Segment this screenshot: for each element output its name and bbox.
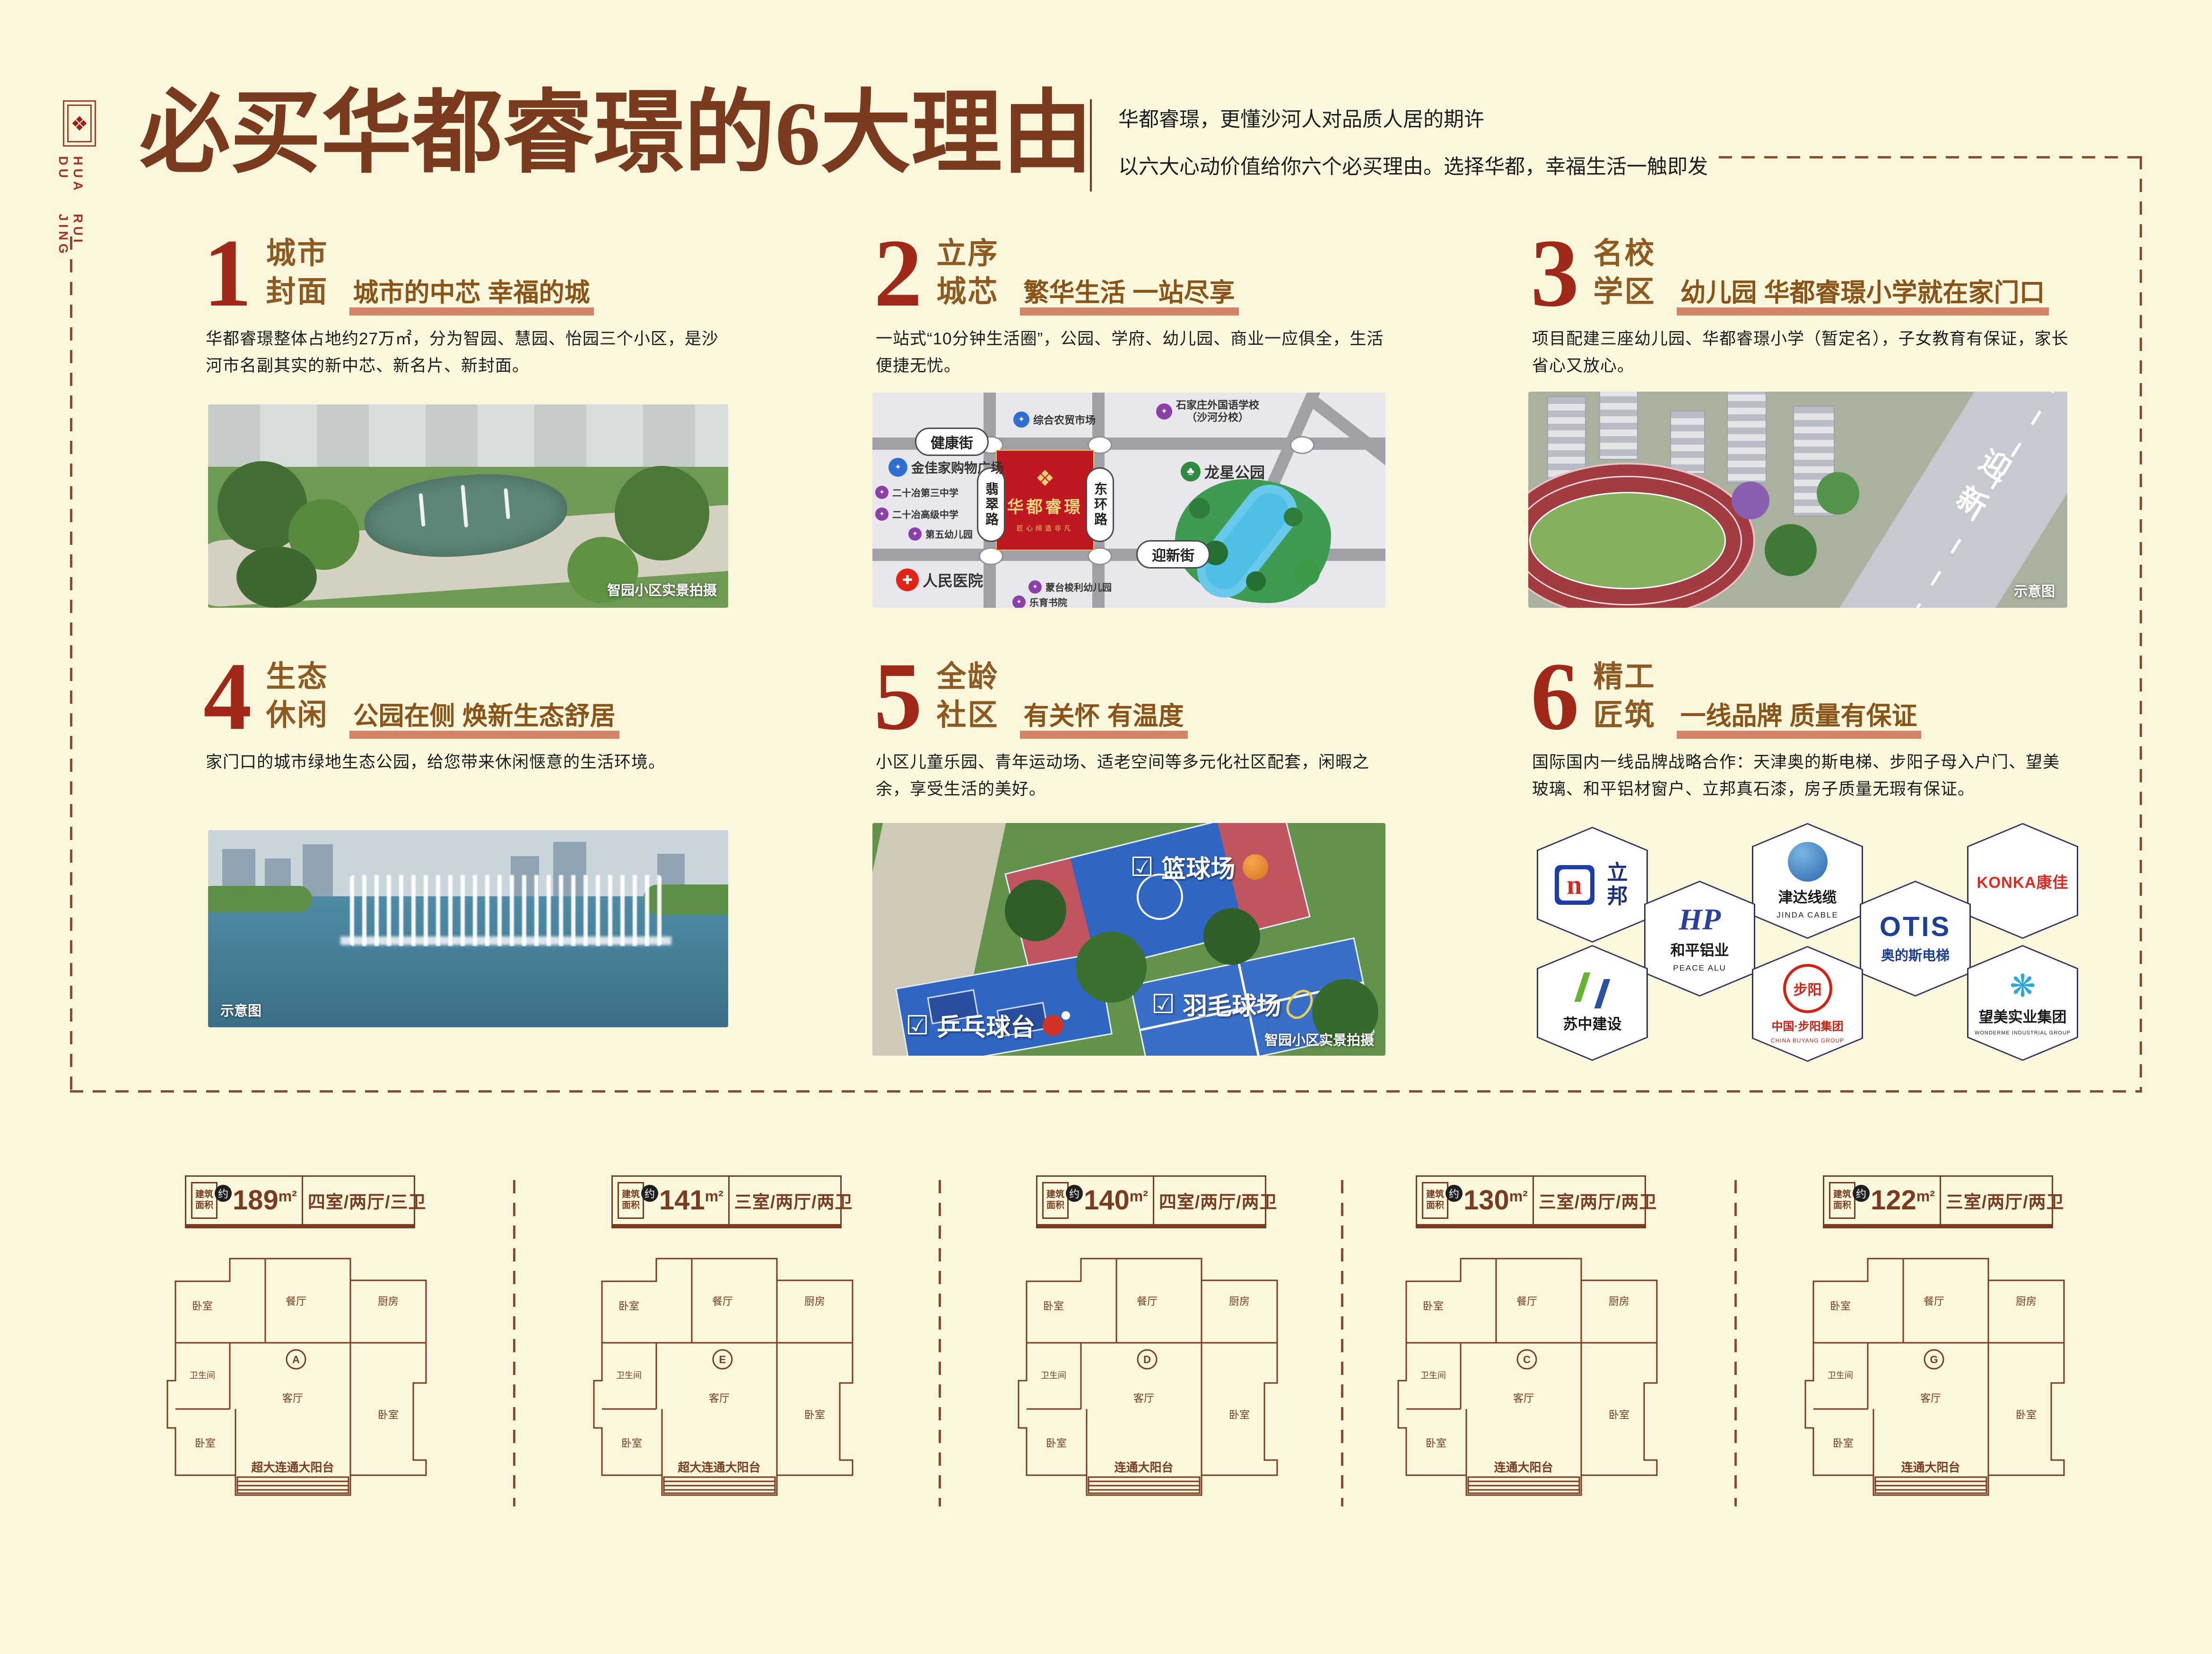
- market-icon: ✦: [1013, 411, 1029, 428]
- section-1-number: 1: [203, 236, 252, 310]
- floorplan-card-189: 建筑面积 约 189m² 四室/两厅/三卫 卧室 餐厅 厨房 卫生间 客厅 卧室…: [185, 1175, 488, 1534]
- svg-text:卧室: 卧室: [1609, 1409, 1629, 1421]
- floorplan-label: 建筑面积 约 140m² 四室/两厅/两卫: [1036, 1175, 1266, 1228]
- plan-unit: m²: [1916, 1188, 1935, 1205]
- photo-caption: 示意图: [2014, 580, 2055, 600]
- running-track: [1528, 463, 1755, 608]
- fountain-icon: [350, 875, 662, 946]
- svg-text:卧室: 卧室: [1426, 1437, 1446, 1449]
- plan-separator: [1341, 1180, 1343, 1506]
- floorplan-drawing: 卧室 餐厅 厨房 卫生间 客厅 卧室 卧室 D 连通大阳台: [1010, 1239, 1294, 1532]
- tagline-line1: 华都睿璟，更懂沙河人对品质人居的期许: [1118, 96, 1708, 143]
- poi-mall: ✦ 金佳家购物广场: [888, 458, 1004, 477]
- plan-separator: [513, 1180, 515, 1506]
- floorplan-drawing: 卧室 餐厅 厨房 卫生间 客厅 卧室 卧室 E 超大连通大阳台: [585, 1239, 869, 1532]
- section-1-heading: 1 城市 封面 城市的中芯 幸福的城: [203, 236, 594, 310]
- section-4-number: 4: [203, 660, 252, 734]
- brand-subname: JINDA CABLE: [1777, 910, 1838, 920]
- brand-subname: CHINA BUYANG GROUP: [1771, 1037, 1844, 1044]
- plan-config: 三室/两厅/两卫: [730, 1177, 858, 1224]
- svg-text:卧室: 卧室: [2016, 1409, 2037, 1421]
- svg-text:卧室: 卧室: [1830, 1300, 1851, 1312]
- poi-kindergarten5-label: 第五幼儿园: [925, 527, 973, 541]
- area-label-box: 建筑面积: [191, 1182, 218, 1219]
- svg-text:餐厅: 餐厅: [286, 1295, 306, 1307]
- svg-text:卧室: 卧室: [618, 1300, 639, 1312]
- section-4-title2: 休闲: [266, 698, 329, 733]
- frame-top-dash: [1719, 156, 2141, 158]
- section-1-subtitle: 城市的中芯 幸福的城: [349, 271, 594, 310]
- frame-left-dash: [70, 236, 72, 1093]
- label-badminton-text: 羽毛球场: [1183, 986, 1281, 1022]
- section-3-heading: 3 名校 学区 幼儿园 华都睿璟小学就在家门口: [1531, 236, 2049, 310]
- brand-grid: n 立邦 津达线缆 JINDA CABLE KONKA康佳 HP 和平铝业 PE…: [1530, 823, 2076, 1062]
- plan-config: 三室/两厅/两卫: [1534, 1177, 1662, 1224]
- pingpong-paddle-icon: [1043, 1015, 1063, 1036]
- section-2-title2: 城芯: [937, 275, 999, 310]
- sports-photo: ☑ 篮球场 ☑ 羽毛球场 ☑ 乒乓球台 智园小区实景拍摄: [872, 823, 1385, 1056]
- photo-caption: 智园小区实景拍摄: [607, 579, 717, 599]
- school-icon: ✦: [875, 508, 888, 521]
- basketball-icon: [1243, 854, 1268, 880]
- checkbox-icon: ☑: [1130, 851, 1154, 883]
- section-2-number: 2: [874, 236, 923, 310]
- section-1-title1: 城市: [266, 236, 594, 271]
- brand-jinda: 津达线缆 JINDA CABLE: [1752, 823, 1863, 939]
- brand-name: 和平铝业: [1671, 938, 1729, 960]
- svg-text:客厅: 客厅: [709, 1392, 730, 1404]
- section-2-heading: 2 立序 城芯 繁华生活 一站尽享: [874, 236, 1239, 310]
- label-basketball-text: 篮球场: [1161, 849, 1235, 884]
- school-icon: ✦: [1012, 595, 1026, 608]
- checkbox-icon: ☑: [906, 1010, 929, 1041]
- section-5-subtitle: 有关怀 有温度: [1020, 695, 1188, 733]
- section-3-number: 3: [1531, 236, 1579, 310]
- tree-icon: [1189, 498, 1210, 519]
- svg-text:餐厅: 餐厅: [712, 1295, 733, 1307]
- section-6-title2: 匠筑: [1594, 698, 1656, 733]
- svg-text:卫生间: 卫生间: [1828, 1371, 1853, 1380]
- svg-text:超大连通大阳台: 超大连通大阳台: [251, 1461, 334, 1474]
- lake-shape: [1186, 473, 1308, 608]
- poi-foreign-school: ✦ 石家庄外国语学校 （沙河分校）: [1156, 399, 1259, 424]
- floorplan-card-122: 建筑面积 约 122m² 三室/两厅/两卫 卧室 餐厅 厨房 卫生间 客厅 卧室…: [1823, 1175, 2125, 1534]
- poi-hospital: ✚ 人民医院: [896, 569, 983, 591]
- floorplan-drawing: 卧室 餐厅 厨房 卫生间 客厅 卧室 卧室 A 超大连通大阳台: [159, 1239, 443, 1532]
- page-title: 必买华都睿璟的6大理由: [139, 86, 1093, 182]
- tagline-line2: 以六大心动价值给你六个必买理由。选择华都，幸福生活一触即发: [1118, 143, 1708, 191]
- svg-text:卫生间: 卫生间: [190, 1371, 215, 1380]
- road-diagonal: [1311, 397, 1385, 468]
- section-3-title2: 学区: [1594, 275, 1656, 310]
- plan-unit: m²: [279, 1188, 297, 1205]
- svg-text:客厅: 客厅: [1920, 1392, 1941, 1404]
- poi-school-senior: ✦ 二十冶高级中学: [875, 507, 958, 521]
- brand-otis: OTIS 奥的斯电梯: [1860, 881, 1971, 997]
- label-pingpong-text: 乒乓球台: [937, 1007, 1035, 1043]
- poi-market-label: 综合农贸市场: [1033, 412, 1096, 427]
- floorplan-label: 建筑面积 约 189m² 四室/两厅/三卫: [185, 1175, 415, 1228]
- brand-subname: PEACE ALU: [1673, 963, 1726, 973]
- svg-text:卫生间: 卫生间: [1420, 1371, 1446, 1380]
- road-label-feicui: 翡翠路: [977, 467, 1005, 542]
- mall-icon: ✦: [888, 458, 907, 477]
- lake-park-photo: 示意图: [208, 830, 728, 1027]
- road-label-jiankang: 健康街: [915, 428, 989, 456]
- svg-text:客厅: 客厅: [1513, 1392, 1534, 1404]
- project-block: ❖ 华都睿璟 匠心缔造非凡: [996, 450, 1094, 551]
- section-3-subtitle: 幼儿园 华都睿璟小学就在家门口: [1677, 271, 2049, 310]
- svg-text:厨房: 厨房: [378, 1295, 399, 1307]
- brand-seal-icon: ❖: [63, 100, 96, 147]
- poi-park-label: 龙星公园: [1204, 461, 1265, 482]
- brand-name: 望美实业集团: [1979, 1005, 2067, 1026]
- area-label-box: 建筑面积: [1042, 1182, 1069, 1219]
- svg-text:连通大阳台: 连通大阳台: [1494, 1461, 1553, 1474]
- brand-buyang: 步阳 中国·步阳集团 CHINA BUYANG GROUP: [1752, 946, 1863, 1062]
- svg-text:卧室: 卧室: [1423, 1300, 1444, 1312]
- building-icon: [1670, 411, 1705, 474]
- road-label-yingxin: 迎新街: [1136, 540, 1210, 569]
- section-6-number: 6: [1531, 660, 1579, 734]
- frame-right-dash: [2140, 156, 2142, 1093]
- svg-text:餐厅: 餐厅: [1924, 1295, 1944, 1307]
- school-icon: ✦: [1156, 403, 1172, 420]
- section-2-body: 一站式“10分钟生活圈”，公园、学府、幼儿园、商业一应俱全，生活便捷无忧。: [876, 325, 1391, 380]
- floorplan-card-140: 建筑面积 约 140m² 四室/两厅/两卫 卧室 餐厅 厨房 卫生间 客厅 卧室…: [1036, 1175, 1339, 1534]
- poi-school3-label: 二十冶第三中学: [892, 485, 958, 499]
- approx-badge: 约: [1446, 1185, 1463, 1202]
- floorplan-card-130: 建筑面积 约 130m² 三室/两厅/两卫 卧室 餐厅 厨房 卫生间 客厅 卧室…: [1416, 1175, 1718, 1534]
- plan-unit: m²: [1509, 1188, 1528, 1205]
- plan-area: 122: [1871, 1181, 1916, 1219]
- svg-text:餐厅: 餐厅: [1516, 1295, 1537, 1307]
- project-emblem-icon: ❖: [1035, 467, 1054, 489]
- kindergarten-icon: ✦: [908, 527, 922, 541]
- brand-suzhong: 苏中建设: [1537, 945, 1648, 1061]
- school-icon: ✦: [875, 486, 888, 499]
- svg-text:餐厅: 餐厅: [1137, 1295, 1158, 1307]
- brand-konka: KONKA康佳: [1967, 823, 2078, 939]
- suzhong-logo-icon: [1575, 972, 1611, 1008]
- building-icon: [1599, 392, 1638, 460]
- poster-canvas: ❖ HUA DU RUI JING 必买华都睿璟的6大理由 华都睿璟，更懂沙河人…: [0, 0, 2212, 1654]
- label-pingpong: ☑ 乒乓球台: [906, 1007, 1063, 1043]
- brand-vertical-line1: HUA DU: [56, 156, 85, 211]
- section-4-body: 家门口的城市绿地生态公园，给您带来休闲惬意的生活环境。: [206, 749, 728, 776]
- tree-icon: [1284, 508, 1303, 526]
- plan-config: 三室/两厅/两卫: [1941, 1177, 2069, 1224]
- photo-caption: 示意图: [220, 1000, 261, 1020]
- approx-badge: 约: [1853, 1185, 1870, 1202]
- building-icon: [1727, 392, 1767, 483]
- nippon-logo-icon: n: [1555, 865, 1594, 905]
- svg-text:卧室: 卧室: [1043, 1300, 1064, 1312]
- brand-nippon: n 立邦: [1537, 827, 1648, 943]
- brand-wonderme: ❋ 望美实业集团 WONDERME INDUSTRIAL GROUP: [1967, 945, 2078, 1061]
- wonderme-logo-icon: ❋: [2010, 970, 2036, 1001]
- poi-school-senior-label: 二十冶高级中学: [892, 507, 958, 521]
- section-3-title1: 名校: [1594, 236, 2049, 271]
- section-5-body: 小区儿童乐园、青年运动场、适老空间等多元化社区配套，闲暇之余，享受生活的美好。: [876, 749, 1391, 803]
- floorplan-label: 建筑面积 约 141m² 三室/两厅/两卫: [611, 1175, 842, 1228]
- fountain-icon: [419, 493, 426, 526]
- tree-icon: [1817, 472, 1859, 515]
- section-6-heading: 6 精工 匠筑 一线品牌 质量有保证: [1531, 660, 1921, 734]
- jinda-sphere-icon: [1788, 842, 1828, 882]
- otis-logo: OTIS: [1880, 913, 1951, 941]
- brand-name: 立邦: [1600, 861, 1630, 909]
- svg-text:客厅: 客厅: [282, 1392, 303, 1404]
- poi-market: ✦ 综合农贸市场: [1013, 411, 1096, 428]
- tree-icon: [1765, 524, 1817, 576]
- section-2-subtitle: 繁华生活 一站尽享: [1020, 271, 1239, 310]
- section-6-subtitle: 一线品牌 质量有保证: [1677, 695, 1921, 733]
- floorplan-card-141: 建筑面积 约 141m² 三室/两厅/两卫 卧室 餐厅 厨房 卫生间 客厅 卧室…: [611, 1175, 914, 1534]
- project-name: 华都睿璟: [1007, 494, 1083, 518]
- brand-name: 津达线缆: [1778, 885, 1837, 907]
- svg-text:卧室: 卧室: [804, 1409, 825, 1421]
- brand-name: KONKA康佳: [1977, 870, 2069, 893]
- svg-text:C: C: [1523, 1354, 1531, 1365]
- poi-kindergarten5: ✦ 第五幼儿园: [908, 527, 973, 541]
- poi-montessori: ✦ 蒙台梭利幼儿园: [1028, 580, 1112, 594]
- section-2-title1: 立序: [937, 236, 1239, 271]
- brand-name: 中国·步阳集团: [1772, 1017, 1844, 1033]
- plan-area: 130: [1463, 1181, 1509, 1219]
- plan-unit: m²: [705, 1188, 723, 1205]
- brand-peacealu: HP 和平铝业 PEACE ALU: [1644, 881, 1755, 997]
- brand-name: 奥的斯电梯: [1881, 945, 1950, 964]
- label-badminton: ☑ 羽毛球场: [1151, 986, 1311, 1022]
- section-4-subtitle: 公园在侧 焕新生态舒居: [349, 695, 619, 733]
- svg-text:卧室: 卧室: [378, 1409, 399, 1421]
- svg-text:A: A: [292, 1354, 300, 1365]
- photo-caption: 智园小区实景拍摄: [1264, 1029, 1374, 1049]
- approx-badge: 约: [641, 1185, 658, 1202]
- tree-icon: [1293, 560, 1320, 586]
- area-label-box: 建筑面积: [1422, 1182, 1448, 1219]
- project-slogan: 匠心缔造非凡: [1017, 524, 1073, 533]
- section-6-body: 国际国内一线品牌战略合作：天津奥的斯电梯、步阳子母入户门、望美玻璃、和平铝材窗户…: [1532, 749, 2073, 803]
- poi-mall-label: 金佳家购物广场: [911, 458, 1004, 477]
- intersection-icon: [1290, 436, 1315, 454]
- floorplan-drawing: 卧室 餐厅 厨房 卫生间 客厅 卧室 卧室 G 连通大阳台: [1797, 1239, 2081, 1532]
- fountain-base: [340, 936, 671, 945]
- poi-hospital-label: 人民医院: [923, 569, 983, 591]
- section-1-title2: 封面: [266, 275, 329, 310]
- floorplan-label: 建筑面积 约 122m² 三室/两厅/两卫: [1823, 1175, 2053, 1228]
- svg-text:卫生间: 卫生间: [1041, 1371, 1066, 1380]
- svg-text:厨房: 厨房: [804, 1295, 825, 1307]
- section-1-body: 华都睿璟整体占地约27万㎡，分为智园、慧园、怡园三个小区，是沙河市名副其实的新中…: [206, 325, 728, 380]
- tree-icon: [1203, 908, 1260, 965]
- svg-text:卧室: 卧室: [195, 1437, 216, 1449]
- section-5-title2: 社区: [937, 698, 999, 733]
- plan-config: 四室/两厅/三卫: [303, 1177, 431, 1224]
- label-basketball: ☑ 篮球场: [1130, 849, 1268, 884]
- svg-text:卧室: 卧室: [1046, 1437, 1067, 1449]
- approx-badge: 约: [1066, 1185, 1083, 1202]
- poi-academy: ✦ 乐育书院: [1012, 595, 1067, 608]
- section-4-heading: 4 生态 休闲 公园在侧 焕新生态舒居: [203, 660, 619, 734]
- school-aerial-photo: 迎新 示意图: [1528, 392, 2067, 608]
- svg-text:连通大阳台: 连通大阳台: [1901, 1461, 1960, 1474]
- tree-icon: [1076, 932, 1147, 1003]
- brand-subname: WONDERME INDUSTRIAL GROUP: [1975, 1030, 2071, 1036]
- svg-text:厨房: 厨房: [1229, 1295, 1250, 1307]
- area-label-box: 建筑面积: [1829, 1182, 1855, 1219]
- tree-icon: [1005, 880, 1066, 941]
- area-label-box: 建筑面积: [618, 1182, 644, 1219]
- floorplan-drawing: 卧室 餐厅 厨房 卫生间 客厅 卧室 卧室 C 连通大阳台: [1390, 1239, 1673, 1532]
- poi-park: ♣ 龙星公园: [1181, 461, 1265, 482]
- sports-field: [1529, 492, 1726, 589]
- frame-bottom-dash: [70, 1090, 2142, 1093]
- svg-text:卧室: 卧室: [1229, 1409, 1250, 1421]
- tree-icon: [1732, 481, 1769, 519]
- section-5-title1: 全龄: [937, 660, 1188, 695]
- plan-area: 141: [659, 1181, 705, 1219]
- tree-icon: [236, 546, 317, 608]
- building-icon: [208, 404, 728, 467]
- header-divider: [1090, 99, 1092, 192]
- svg-text:客厅: 客厅: [1133, 1392, 1154, 1404]
- svg-text:厨房: 厨房: [2016, 1295, 2037, 1307]
- road-label-donghuan: 东环路: [1086, 467, 1114, 542]
- approx-badge: 约: [215, 1185, 232, 1202]
- poi-foreign-school-line2: （沙河分校）: [1176, 411, 1259, 424]
- svg-text:超大连通大阳台: 超大连通大阳台: [678, 1461, 760, 1474]
- section-3-body: 项目配建三座幼儿园、华都睿璟小学（暂定名），子女教育有保证，家长省心又放心。: [1532, 325, 2073, 380]
- poi-montessori-label: 蒙台梭利幼儿园: [1045, 580, 1112, 594]
- plan-area: 189: [233, 1181, 279, 1219]
- svg-text:D: D: [1143, 1354, 1151, 1365]
- peacealu-logo-icon: HP: [1679, 904, 1721, 935]
- plan-unit: m²: [1130, 1188, 1148, 1205]
- svg-text:厨房: 厨房: [1609, 1295, 1629, 1307]
- svg-text:G: G: [1930, 1354, 1938, 1365]
- section-5-number: 5: [874, 660, 923, 734]
- hospital-icon: ✚: [896, 569, 919, 591]
- plan-config: 四室/两厅/两卫: [1154, 1177, 1282, 1224]
- section-4-title1: 生态: [266, 660, 619, 695]
- buyang-logo-icon: 步阳: [1783, 964, 1832, 1013]
- garden-photo: 智园小区实景拍摄: [208, 404, 728, 608]
- fountain-icon: [504, 488, 510, 519]
- header-tagline: 华都睿璟，更懂沙河人对品质人居的期许 以六大心动价值给你六个必买理由。选择华都，…: [1118, 96, 1708, 191]
- plan-separator: [939, 1180, 941, 1506]
- brand-name: 苏中建设: [1563, 1012, 1622, 1033]
- shore-shape: [208, 886, 312, 912]
- svg-text:卧室: 卧室: [1833, 1437, 1854, 1449]
- plan-separator: [1734, 1180, 1737, 1506]
- svg-text:卫生间: 卫生间: [616, 1371, 642, 1380]
- kindergarten-icon: ✦: [1028, 580, 1042, 594]
- section-5-heading: 5 全龄 社区 有关怀 有温度: [874, 660, 1188, 734]
- tree-icon: [615, 466, 709, 560]
- svg-text:E: E: [719, 1354, 726, 1365]
- plan-area: 140: [1084, 1181, 1130, 1219]
- floorplan-label: 建筑面积 约 130m² 三室/两厅/两卫: [1416, 1175, 1646, 1228]
- park-icon: ♣: [1181, 462, 1201, 481]
- svg-text:卧室: 卧室: [621, 1437, 642, 1449]
- tree-icon: [1246, 571, 1266, 591]
- poi-academy-label: 乐育书院: [1029, 595, 1067, 608]
- fountain-icon: [461, 485, 468, 527]
- svg-text:连通大阳台: 连通大阳台: [1114, 1461, 1173, 1474]
- section-6-title1: 精工: [1594, 660, 1921, 695]
- svg-text:卧室: 卧室: [192, 1300, 213, 1312]
- poi-school3: ✦ 二十冶第三中学: [875, 485, 958, 499]
- poi-foreign-school-line1: 石家庄外国语学校: [1176, 399, 1259, 411]
- checkbox-icon: ☑: [1151, 989, 1175, 1020]
- location-map: ❖ 华都睿璟 匠心缔造非凡 健康街 翡翠路 东环路 迎新街 ✦ 综合农贸市场 ✦…: [872, 393, 1385, 608]
